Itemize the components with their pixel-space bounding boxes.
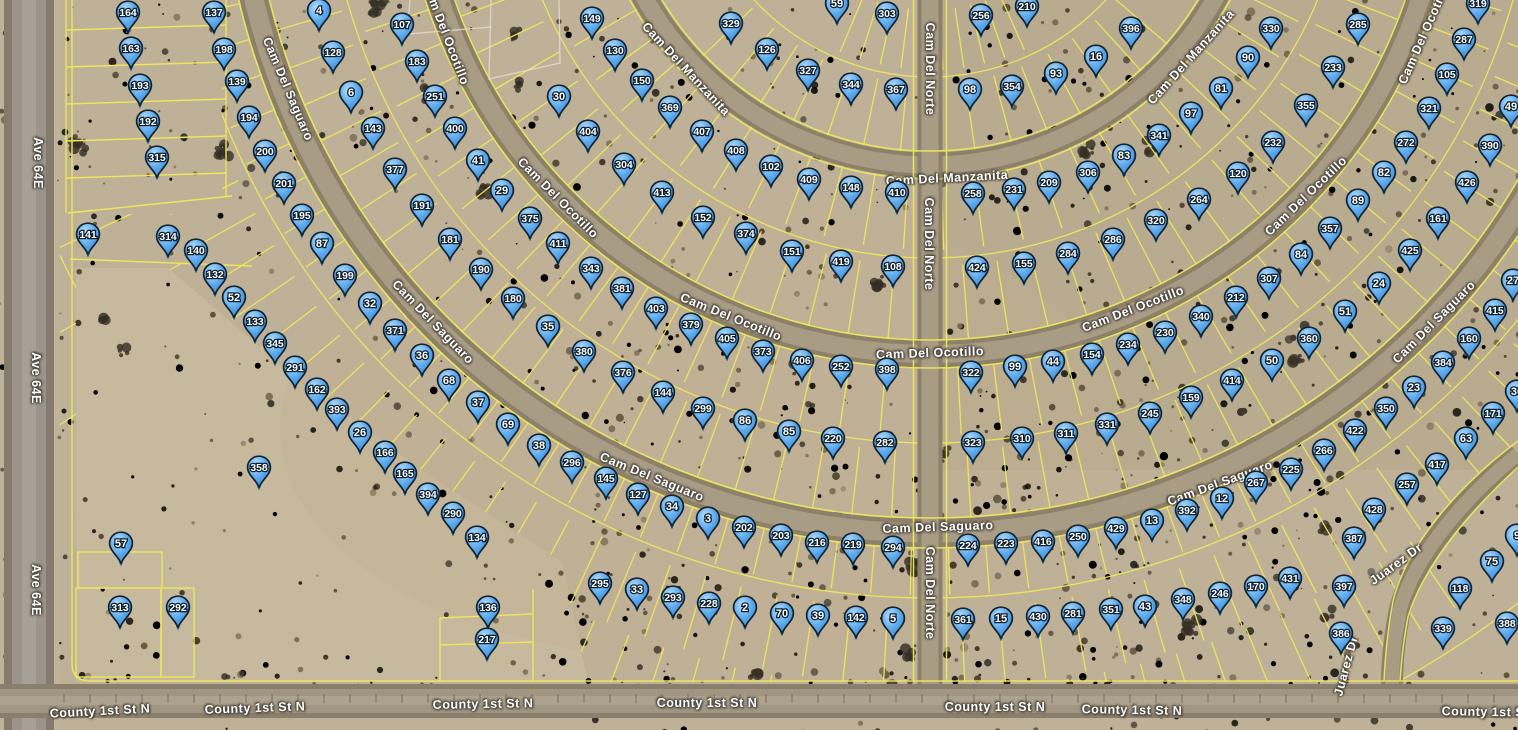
map-pin[interactable]: 137: [201, 0, 227, 34]
map-pin[interactable]: 398: [874, 357, 900, 391]
map-pin[interactable]: 107: [389, 12, 415, 46]
map-pin[interactable]: 82: [1371, 160, 1397, 194]
map-pin[interactable]: 329: [718, 11, 744, 45]
map-pin[interactable]: 379: [678, 312, 704, 346]
map-pin[interactable]: 403: [643, 296, 669, 330]
map-pin[interactable]: 200: [252, 139, 278, 173]
map-pin[interactable]: 220: [820, 426, 846, 460]
map-pin[interactable]: 139: [224, 69, 250, 103]
map-pin[interactable]: 27: [1500, 268, 1518, 302]
map-pin[interactable]: 203: [768, 523, 794, 557]
map-pin[interactable]: 377: [382, 157, 408, 191]
map-pin[interactable]: 130: [602, 38, 628, 72]
map-pin[interactable]: 83: [1111, 143, 1137, 177]
map-pin[interactable]: 299: [690, 396, 716, 430]
map-pin[interactable]: 183: [404, 49, 430, 83]
map-pin[interactable]: 323: [960, 430, 986, 464]
map-pin[interactable]: 264: [1186, 187, 1212, 221]
map-pin[interactable]: 319: [1465, 0, 1491, 25]
map-pin[interactable]: 361: [950, 607, 976, 641]
map-pin[interactable]: 411: [545, 231, 571, 265]
map-pin[interactable]: 296: [559, 450, 585, 484]
map-pin[interactable]: 311: [1053, 421, 1079, 455]
map-pin[interactable]: 429: [1103, 516, 1129, 550]
map-pin[interactable]: 293: [660, 585, 686, 619]
map-pin[interactable]: 75: [1479, 549, 1505, 583]
map-pin[interactable]: 410: [884, 180, 910, 214]
map-pin[interactable]: 190: [468, 257, 494, 291]
map-pin[interactable]: 199: [332, 263, 358, 297]
map-pin[interactable]: 232: [1260, 130, 1286, 164]
map-pin[interactable]: 290: [440, 501, 466, 535]
map-pin[interactable]: 407: [689, 119, 715, 153]
map-pin[interactable]: 224: [955, 533, 981, 567]
map-pin[interactable]: 3: [695, 506, 721, 540]
map-pin[interactable]: 228: [696, 591, 722, 625]
map-pin[interactable]: 160: [1456, 326, 1482, 360]
map-pin[interactable]: 386: [1328, 621, 1354, 655]
map-pin[interactable]: 217: [474, 627, 500, 661]
map-pin[interactable]: 409: [796, 167, 822, 201]
map-pin[interactable]: 149: [579, 6, 605, 40]
map-pin[interactable]: 430: [1025, 604, 1051, 638]
map-pin[interactable]: 35: [535, 314, 561, 348]
map-pin[interactable]: 16: [1083, 44, 1109, 78]
map-pin[interactable]: 90: [1235, 45, 1261, 79]
map-pin[interactable]: 417: [1424, 452, 1450, 486]
map-pin[interactable]: 286: [1100, 227, 1126, 261]
map-pin[interactable]: 294: [880, 535, 906, 569]
map-pin[interactable]: 128: [320, 40, 346, 74]
map-pin[interactable]: 9: [1504, 523, 1518, 557]
map-pin[interactable]: 2: [732, 595, 758, 629]
map-pin[interactable]: 223: [993, 531, 1019, 565]
map-pin[interactable]: 406: [789, 348, 815, 382]
map-pin[interactable]: 310: [1009, 426, 1035, 460]
map-pin[interactable]: 233: [1320, 55, 1346, 89]
map-pin[interactable]: 392: [1174, 498, 1200, 532]
map-pin[interactable]: 321: [1416, 96, 1442, 130]
map-pin[interactable]: 93: [1043, 61, 1069, 95]
map-pin[interactable]: 12: [1209, 486, 1235, 520]
map-pin[interactable]: 292: [165, 595, 191, 629]
map-pin[interactable]: 413: [649, 180, 675, 214]
map-pin[interactable]: 282: [872, 430, 898, 464]
map-pin[interactable]: 99: [1002, 354, 1028, 388]
map-pin[interactable]: 163: [118, 36, 144, 70]
map-pin[interactable]: 148: [838, 175, 864, 209]
map-pin[interactable]: 32: [357, 291, 383, 325]
map-pin[interactable]: 396: [1118, 16, 1144, 50]
map-pin[interactable]: 251: [422, 84, 448, 118]
map-pin[interactable]: 210: [1014, 0, 1040, 28]
map-pin[interactable]: 51: [1332, 299, 1358, 333]
map-pin[interactable]: 339: [1430, 616, 1456, 650]
map-pin[interactable]: 371: [382, 318, 408, 352]
map-pin[interactable]: 97: [1178, 101, 1204, 135]
map-pin[interactable]: 118: [1447, 576, 1473, 610]
map-pin[interactable]: 313: [107, 595, 133, 629]
map-pin[interactable]: 388: [1494, 611, 1518, 645]
map-pin[interactable]: 126: [754, 37, 780, 71]
map-pin[interactable]: 194: [236, 105, 262, 139]
map-pin[interactable]: 150: [629, 68, 655, 102]
map-pin[interactable]: 84: [1288, 242, 1314, 276]
map-pin[interactable]: 24: [1366, 271, 1392, 305]
map-pin[interactable]: 267: [1243, 470, 1269, 504]
map-pin[interactable]: 170: [1243, 574, 1269, 608]
map-pin[interactable]: 266: [1311, 438, 1337, 472]
map-pin[interactable]: 33: [624, 577, 650, 611]
map-pin[interactable]: 70: [769, 601, 795, 635]
map-pin[interactable]: 30: [546, 84, 572, 118]
map-pin[interactable]: 351: [1098, 597, 1124, 631]
map-pin[interactable]: 369: [657, 95, 683, 129]
map-pin[interactable]: 145: [593, 466, 619, 500]
map-pin[interactable]: 102: [758, 154, 784, 188]
map-pin[interactable]: 201: [271, 171, 297, 205]
map-pin[interactable]: 23: [1401, 375, 1427, 409]
map-pin[interactable]: 230: [1152, 320, 1178, 354]
map-pin[interactable]: 171: [1480, 401, 1506, 435]
map-pin[interactable]: 212: [1223, 285, 1249, 319]
map-pin[interactable]: 39: [805, 603, 831, 637]
map-pin[interactable]: 256: [968, 3, 994, 37]
map-pin[interactable]: 192: [135, 109, 161, 143]
map-pin[interactable]: 164: [115, 0, 141, 34]
map-pin[interactable]: 193: [127, 73, 153, 107]
map-pin[interactable]: 98: [957, 77, 983, 111]
map-pin[interactable]: 304: [611, 152, 637, 186]
map-pin[interactable]: 408: [723, 138, 749, 172]
map-pin[interactable]: 307: [1256, 266, 1282, 300]
map-pin[interactable]: 416: [1030, 529, 1056, 563]
map-pin[interactable]: 343: [578, 256, 604, 290]
map-pin[interactable]: 180: [500, 286, 526, 320]
map-pin[interactable]: 306: [1075, 160, 1101, 194]
map-pin[interactable]: 415: [1482, 298, 1508, 332]
map-pin[interactable]: 285: [1345, 12, 1371, 46]
map-pin[interactable]: 41: [465, 148, 491, 182]
map-pin[interactable]: 216: [804, 530, 830, 564]
map-pin[interactable]: 246: [1207, 581, 1233, 615]
map-pin[interactable]: 341: [1146, 123, 1172, 157]
map-pin[interactable]: 219: [840, 532, 866, 566]
map-pin[interactable]: 36: [409, 343, 435, 377]
map-pin[interactable]: 397: [1331, 574, 1357, 608]
map-pin[interactable]: 281: [1060, 601, 1086, 635]
map-pin[interactable]: 159: [1178, 385, 1204, 419]
map-pin[interactable]: 4: [306, 0, 332, 32]
map-pin[interactable]: 354: [999, 74, 1025, 108]
map-pin[interactable]: 426: [1454, 170, 1480, 204]
map-pin[interactable]: 141: [75, 222, 101, 256]
map-pin[interactable]: 152: [690, 205, 716, 239]
map-pin[interactable]: 272: [1393, 130, 1419, 164]
map-pin[interactable]: 258: [960, 181, 986, 215]
map-pin[interactable]: 373: [750, 339, 776, 373]
map-pin[interactable]: 350: [1373, 396, 1399, 430]
map-pin[interactable]: 15: [988, 606, 1014, 640]
map-pin[interactable]: 344: [838, 72, 864, 106]
map-pin[interactable]: 422: [1342, 418, 1368, 452]
map-pin[interactable]: 257: [1394, 472, 1420, 506]
map-pin[interactable]: 49: [1498, 94, 1518, 128]
map-pin[interactable]: 355: [1293, 93, 1319, 127]
map-pin[interactable]: 358: [246, 455, 272, 489]
map-pin[interactable]: 320: [1143, 208, 1169, 242]
map-pin[interactable]: 151: [779, 239, 805, 273]
map-pin[interactable]: 322: [958, 360, 984, 394]
map-pin[interactable]: 387: [1341, 526, 1367, 560]
map-pin[interactable]: 38: [526, 433, 552, 467]
map-pin[interactable]: 155: [1011, 251, 1037, 285]
map-pin[interactable]: 414: [1219, 368, 1245, 402]
map-pin[interactable]: 142: [843, 605, 869, 639]
map-pin[interactable]: 315: [144, 145, 170, 179]
map-pin[interactable]: 127: [625, 482, 651, 516]
map-pin[interactable]: 374: [733, 221, 759, 255]
map-pin[interactable]: 367: [883, 77, 909, 111]
map-pin[interactable]: 85: [776, 419, 802, 453]
map-pin[interactable]: 295: [587, 571, 613, 605]
map-pin[interactable]: 57: [108, 531, 134, 565]
map-pin[interactable]: 314: [155, 224, 181, 258]
map-pin[interactable]: 431: [1277, 566, 1303, 600]
map-pin[interactable]: 29: [489, 178, 515, 212]
map-pin[interactable]: 44: [1040, 349, 1066, 383]
map-pin[interactable]: 34: [659, 494, 685, 528]
map-pin[interactable]: 87: [309, 231, 335, 265]
map-pin[interactable]: 5: [880, 606, 906, 640]
map-pin[interactable]: 68: [436, 368, 462, 402]
map-pin[interactable]: 375: [517, 206, 543, 240]
map-pin[interactable]: 381: [609, 276, 635, 310]
map-pin[interactable]: 357: [1317, 216, 1343, 250]
map-pin[interactable]: 231: [1001, 177, 1027, 211]
map-pin[interactable]: 303: [874, 1, 900, 35]
map-pin[interactable]: 250: [1065, 524, 1091, 558]
map-pin[interactable]: 234: [1115, 332, 1141, 366]
map-pin[interactable]: 89: [1345, 188, 1371, 222]
map-pin[interactable]: 50: [1259, 348, 1285, 382]
map-pin[interactable]: 191: [409, 193, 435, 227]
map-pin[interactable]: 425: [1397, 238, 1423, 272]
map-pin[interactable]: 63: [1453, 426, 1479, 460]
map-pin[interactable]: 86: [732, 408, 758, 442]
map-pin[interactable]: 37: [465, 390, 491, 424]
map-pin[interactable]: 198: [211, 37, 237, 71]
map-pin[interactable]: 134: [464, 525, 490, 559]
map-pin[interactable]: 26: [347, 420, 373, 454]
map-pin[interactable]: 202: [731, 515, 757, 549]
map-pin[interactable]: 6: [338, 80, 364, 114]
map-pin[interactable]: 69: [495, 412, 521, 446]
satellite-map[interactable]: Ave 64EAve 64EAve 64ECounty 1st St NCoun…: [0, 0, 1518, 730]
map-pin[interactable]: 348: [1170, 587, 1196, 621]
map-pin[interactable]: 400: [442, 116, 468, 150]
map-pin[interactable]: 380: [571, 339, 597, 373]
map-pin[interactable]: 252: [828, 354, 854, 388]
map-pin[interactable]: 108: [880, 254, 906, 288]
map-pin[interactable]: 405: [714, 326, 740, 360]
map-pin[interactable]: 394: [415, 482, 441, 516]
map-pin[interactable]: 376: [610, 360, 636, 394]
map-pin[interactable]: 136: [475, 595, 501, 629]
map-pin[interactable]: 360: [1296, 326, 1322, 360]
map-pin[interactable]: 287: [1451, 27, 1477, 61]
map-pin[interactable]: 181: [437, 227, 463, 261]
map-pin[interactable]: 419: [828, 249, 854, 283]
map-pin[interactable]: 330: [1258, 16, 1284, 50]
map-pin[interactable]: 340: [1188, 304, 1214, 338]
map-pin[interactable]: 43: [1132, 594, 1158, 628]
map-pin[interactable]: 144: [650, 380, 676, 414]
map-pin[interactable]: 36: [1504, 379, 1518, 413]
map-pin[interactable]: 225: [1278, 457, 1304, 491]
map-pin[interactable]: 13: [1139, 508, 1165, 542]
map-pin[interactable]: 161: [1425, 206, 1451, 240]
map-pin[interactable]: 331: [1094, 412, 1120, 446]
map-pin[interactable]: 245: [1137, 401, 1163, 435]
map-pin[interactable]: 81: [1208, 76, 1234, 110]
map-pin[interactable]: 424: [964, 255, 990, 289]
map-pin[interactable]: 327: [795, 58, 821, 92]
map-pin[interactable]: 59: [824, 0, 850, 25]
map-pin[interactable]: 143: [360, 116, 386, 150]
map-pin[interactable]: 390: [1477, 133, 1503, 167]
map-pin[interactable]: 105: [1434, 62, 1460, 96]
map-pin[interactable]: 284: [1055, 241, 1081, 275]
map-pin[interactable]: 384: [1430, 350, 1456, 384]
map-pin[interactable]: 404: [575, 119, 601, 153]
map-pin[interactable]: 209: [1036, 170, 1062, 204]
map-pin[interactable]: 154: [1079, 342, 1105, 376]
map-pin[interactable]: 120: [1225, 161, 1251, 195]
